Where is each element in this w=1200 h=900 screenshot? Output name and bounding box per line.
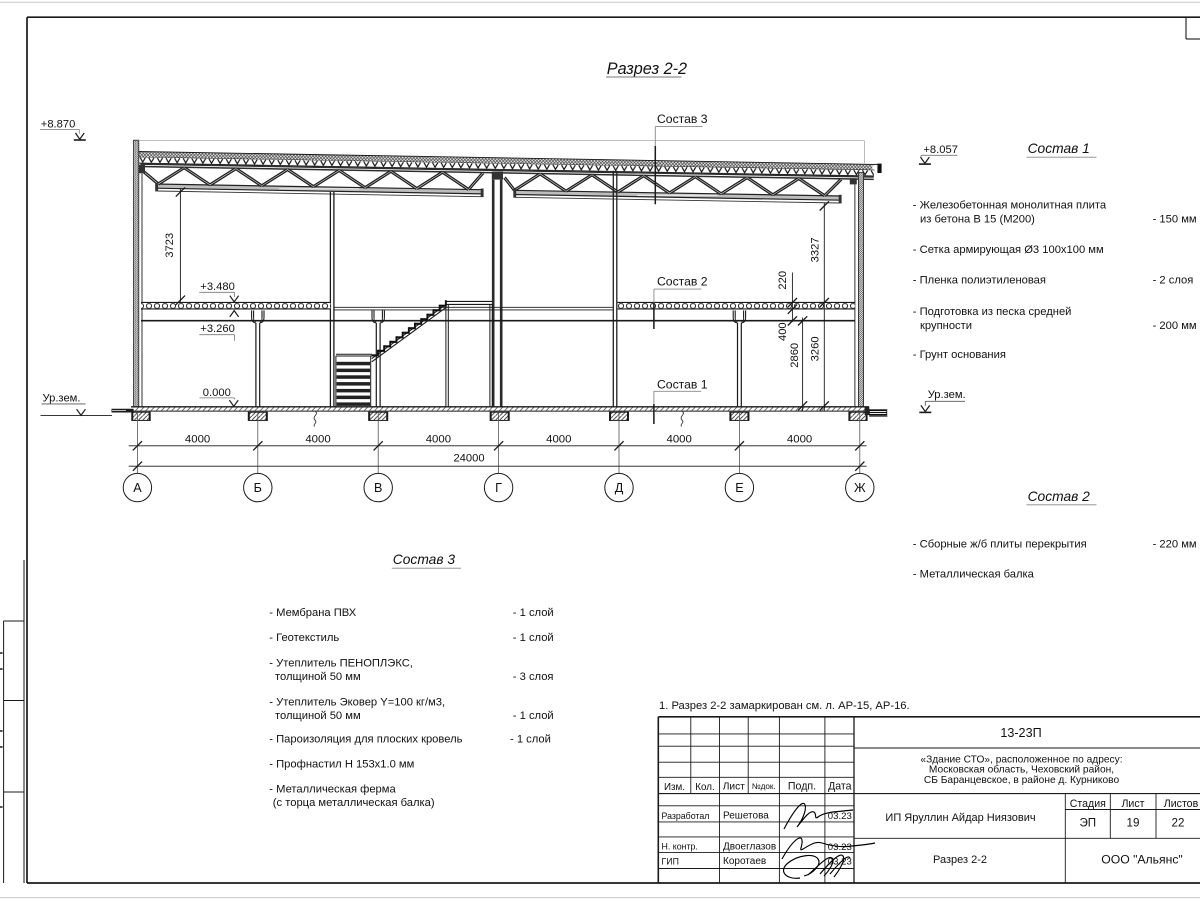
svg-text:4000: 4000 [787, 434, 812, 446]
svg-text:- Железобетонная монолитная п: - Железобетонная монолитная плита [913, 199, 1107, 211]
svg-text:Разрез 2-2: Разрез 2-2 [933, 854, 987, 866]
svg-text:- Утеплитель ПЕНОПЛЭКС,: - Утеплитель ПЕНОПЛЭКС, [269, 657, 413, 669]
svg-text:крупности: крупности [920, 320, 972, 332]
svg-text:- 2 слоя: - 2 слоя [1153, 274, 1194, 286]
svg-text:А: А [133, 481, 142, 495]
svg-text:+3.260: +3.260 [200, 323, 235, 335]
svg-text:19: 19 [1127, 816, 1140, 829]
svg-text:- Подготовка из песка средней: - Подготовка из песка средней [913, 306, 1072, 318]
svg-text:- 1 слой: - 1 слой [510, 733, 551, 745]
svg-text:2860: 2860 [789, 343, 801, 368]
svg-text:толщиной 50 мм: толщиной 50 мм [275, 710, 361, 722]
svg-text:ИП Яруллин Айдар Ниязович: ИП Яруллин Айдар Ниязович [885, 812, 1035, 824]
svg-text:- 1 слой: - 1 слой [513, 632, 554, 644]
svg-text:Кол.: Кол. [695, 782, 714, 793]
svg-text:03.23: 03.23 [828, 842, 852, 853]
svg-text:- 220 мм: - 220 мм [1153, 538, 1197, 550]
svg-text:- Утеплитель Эковер Y=100 кг/м: - Утеплитель Эковер Y=100 кг/м3, [269, 696, 445, 708]
svg-text:Решетова: Решетова [723, 811, 769, 822]
svg-text:Состав 2: Состав 2 [1028, 489, 1091, 504]
svg-text:Состав 1: Состав 1 [657, 377, 708, 391]
svg-text:Лист: Лист [1121, 798, 1144, 810]
svg-text:+3.480: +3.480 [200, 281, 235, 293]
svg-text:400: 400 [777, 322, 789, 341]
svg-text:4000: 4000 [546, 434, 571, 446]
svg-text:22: 22 [1172, 816, 1185, 829]
svg-text:- Сборные ж/б плиты перекрытия: - Сборные ж/б плиты перекрытия [913, 538, 1087, 550]
svg-text:Б: Б [254, 481, 262, 495]
svg-text:- 150 мм: - 150 мм [1153, 213, 1197, 225]
svg-text:Разработал: Разработал [662, 811, 710, 821]
svg-text:Разрез 2-2: Разрез 2-2 [607, 60, 687, 78]
svg-text:- Мембрана ПВХ: - Мембрана ПВХ [269, 607, 356, 619]
svg-text:3327: 3327 [809, 237, 821, 262]
svg-text:Состав 2: Состав 2 [657, 274, 708, 288]
svg-text:ГИП: ГИП [662, 856, 679, 866]
svg-text:Ж: Ж [854, 481, 866, 495]
svg-text:Дата: Дата [828, 780, 852, 792]
svg-text:4000: 4000 [305, 434, 330, 446]
svg-text:3260: 3260 [809, 336, 821, 361]
svg-text:- Металлическая балка: - Металлическая балка [913, 569, 1035, 581]
svg-text:- Геотекстиль: - Геотекстиль [269, 632, 339, 644]
svg-text:- 200 мм: - 200 мм [1153, 320, 1197, 332]
svg-text:- Сетка армирующая Ø3 100х100: - Сетка армирующая Ø3 100х100 мм [913, 244, 1104, 256]
svg-text:Состав 1: Состав 1 [1028, 141, 1090, 156]
svg-text:Ур.зем.: Ур.зем. [43, 393, 81, 405]
svg-text:Е: Е [735, 481, 743, 495]
svg-text:0.000: 0.000 [203, 387, 231, 399]
svg-text:Ур.зем.: Ур.зем. [928, 389, 966, 401]
svg-text:13-23П: 13-23П [1000, 726, 1041, 740]
svg-text:Двоеглазов: Двоеглазов [723, 842, 776, 853]
svg-text:- 1 слой: - 1 слой [513, 710, 554, 722]
svg-text:4000: 4000 [667, 434, 692, 446]
svg-text:220: 220 [777, 271, 789, 290]
svg-text:3723: 3723 [164, 233, 176, 258]
svg-text:СБ Баранцевское, в районе д. К: СБ Баранцевское, в районе д. Курниково [924, 775, 1120, 786]
svg-text:Лист: Лист [723, 781, 745, 792]
svg-text:- Профнастил Н 153х1.0 мм: - Профнастил Н 153х1.0 мм [269, 758, 414, 770]
svg-text:- Металлическая ферма: - Металлическая ферма [269, 783, 396, 795]
svg-text:Листов: Листов [1164, 798, 1199, 810]
svg-text:ЭП: ЭП [1079, 816, 1096, 829]
svg-text:- Пароизоляция для плоских кро: - Пароизоляция для плоских кровель [269, 733, 462, 745]
svg-text:1. Разрез 2-2 замаркирован см.: 1. Разрез 2-2 замаркирован см. л. АР-15,… [659, 700, 910, 712]
svg-text:Изм.: Изм. [664, 782, 685, 793]
svg-text:В: В [374, 481, 382, 495]
svg-text:№док.: №док. [752, 782, 776, 791]
svg-text:Г: Г [495, 481, 502, 495]
svg-text:Стадия: Стадия [1070, 798, 1106, 810]
svg-text:4000: 4000 [185, 434, 210, 446]
svg-text:(с торца металлическая балка): (с торца металлическая балка) [273, 797, 435, 809]
svg-text:Н. контр.: Н. контр. [662, 842, 698, 852]
svg-text:Состав 3: Состав 3 [657, 112, 708, 126]
svg-text:толщиной 50 мм: толщиной 50 мм [275, 671, 361, 683]
svg-text:4000: 4000 [426, 434, 451, 446]
svg-text:- 1 слой: - 1 слой [513, 607, 554, 619]
svg-text:Коротаев: Коротаев [723, 856, 766, 867]
svg-text:из бетона В 15 (М200): из бетона В 15 (М200) [920, 213, 1035, 225]
svg-text:+8.057: +8.057 [923, 144, 958, 156]
svg-text:- 3 слоя: - 3 слоя [513, 671, 554, 683]
svg-text:Д: Д [615, 481, 624, 495]
svg-text:24000: 24000 [453, 453, 484, 465]
svg-text:- Пленка полиэтиленовая: - Пленка полиэтиленовая [913, 274, 1046, 286]
svg-text:+8.870: +8.870 [41, 119, 76, 131]
svg-text:Состав 3: Состав 3 [393, 552, 456, 567]
svg-text:- Грунт основания: - Грунт основания [913, 349, 1006, 361]
svg-text:ООО "Альянс": ООО "Альянс" [1101, 852, 1183, 866]
svg-text:Подп.: Подп. [788, 780, 816, 792]
